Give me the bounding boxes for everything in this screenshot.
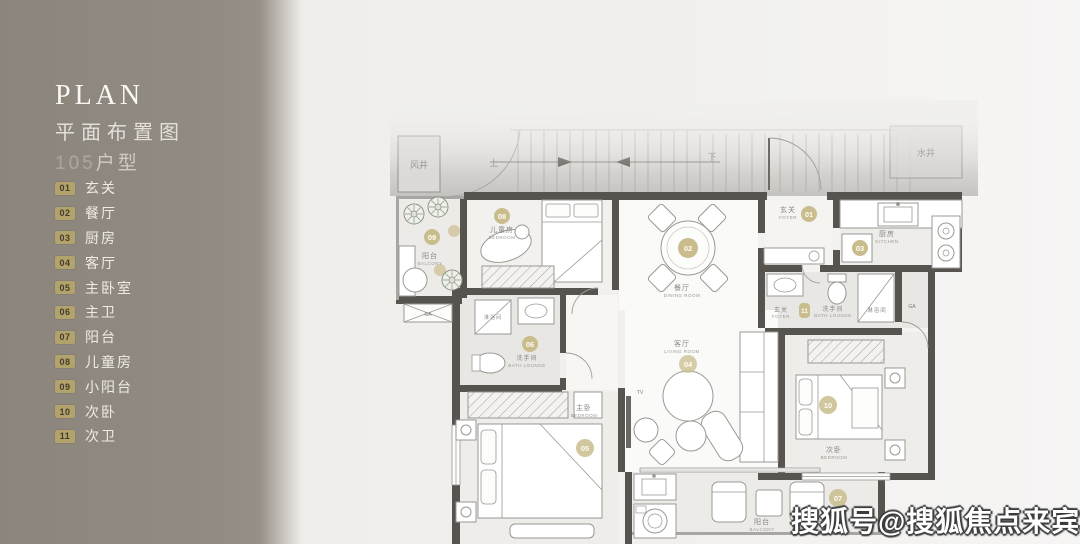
second-wardrobe (808, 340, 884, 363)
watermark: 搜狐号@搜狐焦点来宾站 (791, 500, 1080, 540)
legend-item-secondbath: 11次卫 (55, 424, 133, 449)
legend-badge: 02 (55, 207, 75, 220)
stair-hall: 风井 (390, 100, 978, 196)
bath-vanity (767, 274, 803, 296)
room-label-en: LIVING ROOM (664, 349, 700, 354)
legend-label: 儿童房 (85, 352, 133, 372)
room-label-en: FOYER (779, 215, 797, 220)
nightstand (885, 368, 905, 388)
room-label-cn: 洗手间 (516, 354, 537, 362)
kids-chair (515, 225, 529, 239)
toilet-tank (472, 355, 480, 371)
sofa (740, 332, 778, 462)
room-label-cn: 玄关 (780, 205, 796, 214)
room-label-en: BALCONY (417, 261, 442, 266)
toilet (828, 282, 846, 304)
legend-label: 客厅 (85, 253, 117, 273)
laundry-sink (634, 474, 676, 500)
room-label-cn: 阳台 (422, 251, 438, 260)
unit-type-label: 105户型 (55, 148, 140, 175)
room-label-cn: 客厅 (674, 339, 690, 348)
window-tag-right: GA (908, 304, 916, 310)
badge-number: 11 (801, 308, 808, 315)
badge-number: 03 (856, 244, 864, 253)
shoe-cabinet (764, 248, 824, 264)
legend-label: 小阳台 (85, 377, 133, 397)
room-label-cn: 主卧 (576, 403, 592, 412)
legend-badge: 03 (55, 231, 75, 244)
vestibule-label: 玄关 (774, 306, 788, 314)
legend-label: 玄关 (85, 178, 117, 198)
room-legend: 01玄关 02餐厅 03厨房 04客厅 05主卧室 06主卫 07阳台 08儿童… (55, 176, 133, 449)
tv-cabinet (626, 396, 631, 448)
room-label-cn: 洗手间 (822, 305, 843, 313)
legend-label: 主卧室 (85, 278, 133, 298)
legend-label: 阳台 (85, 327, 117, 347)
balcony-stool (403, 268, 427, 292)
legend-badge: 09 (55, 380, 75, 393)
legend-item-living: 04客厅 (55, 250, 133, 275)
legend-item-balcony: 07阳台 (55, 325, 133, 350)
legend-label: 厨房 (85, 228, 117, 248)
outdoor-table (756, 490, 782, 516)
legend-badge: 08 (55, 355, 75, 368)
room-label-en: KITCHEN (875, 239, 898, 244)
kitchen-stove (932, 216, 960, 268)
room-label-cn: 阳台 (754, 517, 770, 526)
legend-badge: 04 (55, 256, 75, 269)
legend-badge: 05 (55, 281, 75, 294)
nightstand (456, 420, 476, 440)
room-label-en: BALCONY (749, 527, 774, 532)
badge-number: 01 (805, 210, 813, 219)
room-label-en: DINING ROOM (664, 293, 701, 298)
tv-label: TV (637, 390, 644, 396)
window-tag-left: GA (424, 312, 432, 318)
floor-plan-drawing: 风井 (390, 100, 978, 544)
page: PLAN 平面布置图 105户型 01玄关 02餐厅 03厨房 04客厅 05主… (0, 0, 1080, 544)
nightstand (885, 440, 905, 460)
legend-badge: 01 (55, 182, 75, 195)
room-label-en: BEDROOM (489, 235, 516, 240)
bed-blanket (852, 388, 878, 428)
room-label-en: BEDROOM (571, 413, 598, 418)
room-label-en: BATH LOUNGE (814, 313, 851, 318)
bed-bench (510, 524, 594, 538)
unit-suffix: 户型 (96, 153, 140, 174)
outdoor-chair (712, 482, 746, 522)
badge-number: 08 (498, 212, 506, 221)
legend-badge: 11 (55, 430, 75, 443)
badge-number: 04 (684, 360, 693, 369)
room-master: 主卧 BEDROOM 05 (456, 392, 602, 538)
shower-label: 淋浴间 (484, 314, 502, 321)
pouf (634, 418, 658, 442)
master-bed (478, 424, 602, 518)
room-label-cn: 餐厅 (674, 283, 690, 292)
legend-item-kitchen: 03厨房 (55, 226, 133, 251)
legend-item-masterbath: 06主卫 (55, 300, 133, 325)
badge-number: 06 (526, 340, 534, 349)
vestibule-label-en: FOYER (772, 314, 790, 319)
badge-number: 09 (428, 233, 436, 242)
master-wardrobe (468, 392, 568, 418)
kids-wardrobe (482, 266, 554, 288)
legend-item-master: 05主卧室 (55, 275, 133, 300)
badge-number: 02 (684, 244, 692, 253)
badge-number: 05 (581, 444, 589, 453)
room-label-en: BATH LOUNGE (508, 363, 545, 368)
legend-label: 餐厅 (85, 203, 117, 223)
nightstand (456, 502, 476, 522)
bath-vanity (518, 298, 554, 324)
unit-number: 105 (55, 153, 96, 174)
legend-label: 主卫 (85, 302, 117, 322)
legend-item-entry: 01玄关 (55, 176, 133, 201)
page-subtitle: 平面布置图 (55, 116, 185, 145)
room-label-cn: 儿童房 (490, 225, 514, 234)
planter-pot (448, 225, 460, 237)
badge-number: 10 (824, 401, 832, 410)
legend-item-smallbalcony: 09小阳台 (55, 374, 133, 399)
legend-badge: 06 (55, 306, 75, 319)
floor-plan: 风井 (390, 100, 978, 544)
toilet-tank (828, 274, 846, 282)
legend-label: 次卧 (85, 402, 117, 422)
legend-badge: 07 (55, 331, 75, 344)
room-label-en: BEDROOM (821, 455, 848, 460)
legend-item-second: 10次卧 (55, 399, 133, 424)
legend-label: 次卫 (85, 426, 117, 446)
page-title: PLAN (55, 80, 144, 112)
coffee-table (663, 371, 713, 421)
legend-item-kids: 08儿童房 (55, 350, 133, 375)
room-label-cn: 厨房 (879, 229, 895, 238)
sidebar: PLAN 平面布置图 105户型 01玄关 02餐厅 03厨房 04客厅 05主… (0, 0, 302, 544)
legend-item-dining: 02餐厅 (55, 201, 133, 226)
room-label-cn: 次卧 (826, 445, 842, 454)
side-table (676, 421, 706, 451)
legend-badge: 10 (55, 405, 75, 418)
shower-label: 淋浴间 (867, 306, 887, 314)
